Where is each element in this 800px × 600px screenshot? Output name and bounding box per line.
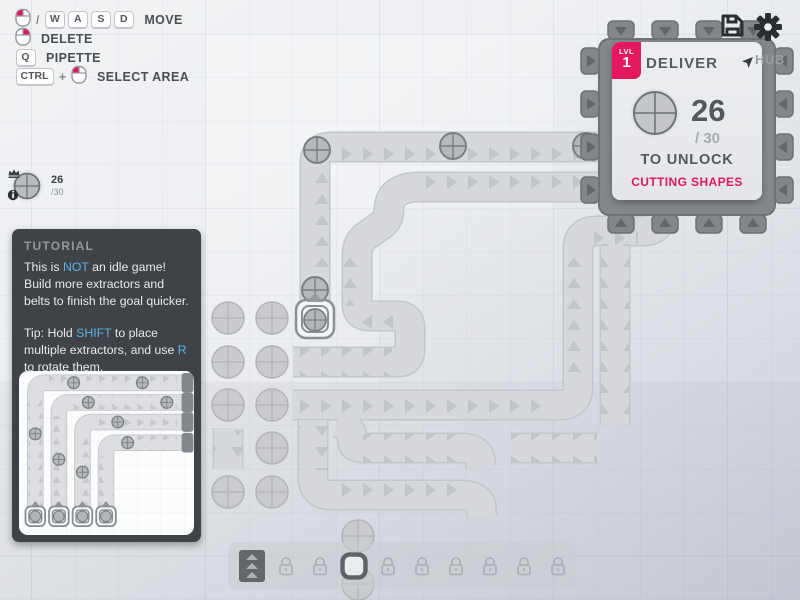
delete-label: DELETE (41, 32, 93, 46)
toolbar-slot-locked (475, 547, 505, 584)
pin-icon[interactable] (741, 56, 754, 74)
key-d: D (114, 11, 134, 29)
key-q: Q (16, 49, 36, 67)
toolbar-slot-locked (373, 547, 403, 584)
hub-label: HUB (755, 52, 785, 67)
hint-pipette: Q PIPETTE (14, 48, 189, 67)
slash-separator: / (36, 13, 39, 27)
goal-total: / 30 (695, 130, 720, 147)
toolbar-slot-locked (271, 547, 301, 584)
tutorial-paragraph-2: Tip: Hold SHIFT to place multiple extrac… (24, 325, 189, 377)
keybinding-hints: / W A S D MOVE DELETE Q PIPETTE CTRL + S… (14, 10, 189, 86)
mouse-left-icon (71, 65, 87, 89)
mouse-right-icon (15, 27, 31, 51)
game-screen: { "hints": { "slash": "/", "key_w": "W",… (0, 0, 800, 600)
reward-text: CUTTING SHAPES (612, 175, 762, 189)
belt-icon (239, 550, 265, 582)
unlock-text: TO UNLOCK (612, 152, 762, 168)
highlight-r: R (178, 343, 187, 357)
tutorial-paragraph-1: This is NOT an idle game! Build more ext… (24, 259, 189, 311)
toolbar-slot-locked (543, 547, 573, 584)
crown-icon (9, 170, 20, 179)
lock-icon (278, 556, 294, 576)
tutorial-panel: TUTORIAL This is NOT an idle game! Build… (12, 229, 201, 542)
key-s: S (91, 11, 111, 29)
key-w: W (45, 11, 65, 29)
goal-amount: 26 (51, 175, 64, 186)
hint-select-area: CTRL + SELECT AREA (14, 67, 189, 86)
toolbar-slot-locked (305, 547, 335, 584)
pinned-goal[interactable]: 26 /30 (6, 166, 64, 206)
lock-icon (414, 556, 430, 576)
pipette-label: PIPETTE (46, 51, 101, 65)
lock-icon (380, 556, 396, 576)
lock-icon (516, 556, 532, 576)
tutorial-title: TUTORIAL (24, 239, 189, 253)
move-label: MOVE (144, 13, 182, 27)
goal-total: /30 (51, 188, 64, 197)
toolbar-slot-locked (441, 547, 471, 584)
deliver-title: DELIVER (612, 55, 752, 72)
save-button[interactable] (720, 13, 745, 43)
lock-icon (550, 556, 566, 576)
goal-shape-icon (6, 166, 46, 206)
key-a: A (68, 11, 88, 29)
hint-delete: DELETE (14, 29, 189, 48)
plus-separator: + (59, 70, 66, 84)
lock-icon (448, 556, 464, 576)
settings-icon (752, 11, 784, 43)
toolbar-slot-belt[interactable] (237, 547, 267, 584)
hub-goal-panel[interactable]: LVL 1 DELIVER 26 / 30 TO UNLOCK CUTTING … (612, 42, 762, 200)
lock-icon (312, 556, 328, 576)
extractor-building[interactable] (296, 293, 334, 338)
build-toolbar (228, 542, 577, 589)
key-ctrl: CTRL (16, 68, 54, 86)
extractor-icon (339, 549, 369, 583)
goal-shape-preview (629, 87, 681, 144)
settings-button[interactable] (752, 11, 784, 48)
hint-move: / W A S D MOVE (14, 10, 189, 29)
highlight-shift: SHIFT (76, 326, 111, 340)
toolbar-slot-locked (407, 547, 437, 584)
save-icon (720, 13, 745, 38)
toolbar-slot-locked (509, 547, 539, 584)
info-icon (8, 190, 18, 200)
lock-icon (482, 556, 498, 576)
toolbar-slot-extractor[interactable] (339, 547, 369, 584)
select-area-label: SELECT AREA (97, 70, 189, 84)
tutorial-image (19, 371, 194, 535)
highlight-not: NOT (63, 260, 89, 274)
delivered-amount: 26 (691, 95, 725, 126)
